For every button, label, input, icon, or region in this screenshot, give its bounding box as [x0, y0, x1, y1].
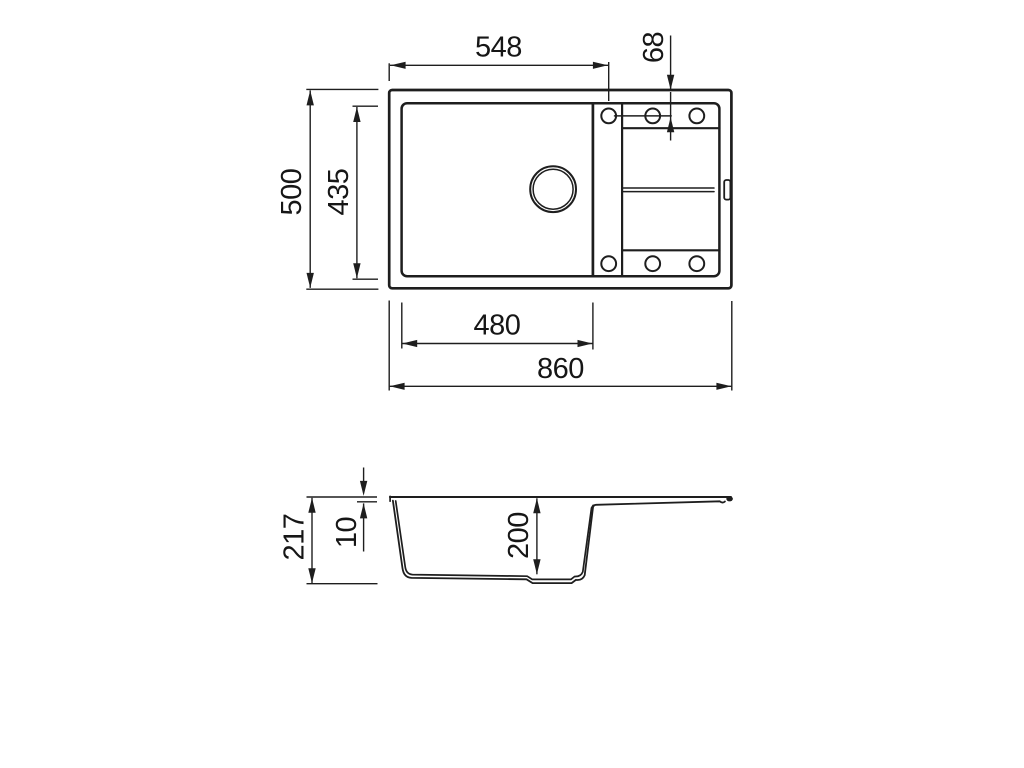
- svg-text:435: 435: [323, 169, 355, 216]
- svg-text:860: 860: [537, 353, 584, 385]
- svg-text:548: 548: [475, 31, 522, 63]
- svg-text:217: 217: [279, 514, 311, 561]
- svg-text:68: 68: [638, 32, 670, 63]
- svg-text:500: 500: [276, 169, 308, 216]
- svg-text:10: 10: [331, 517, 363, 548]
- svg-text:200: 200: [503, 512, 535, 559]
- svg-text:480: 480: [474, 310, 521, 342]
